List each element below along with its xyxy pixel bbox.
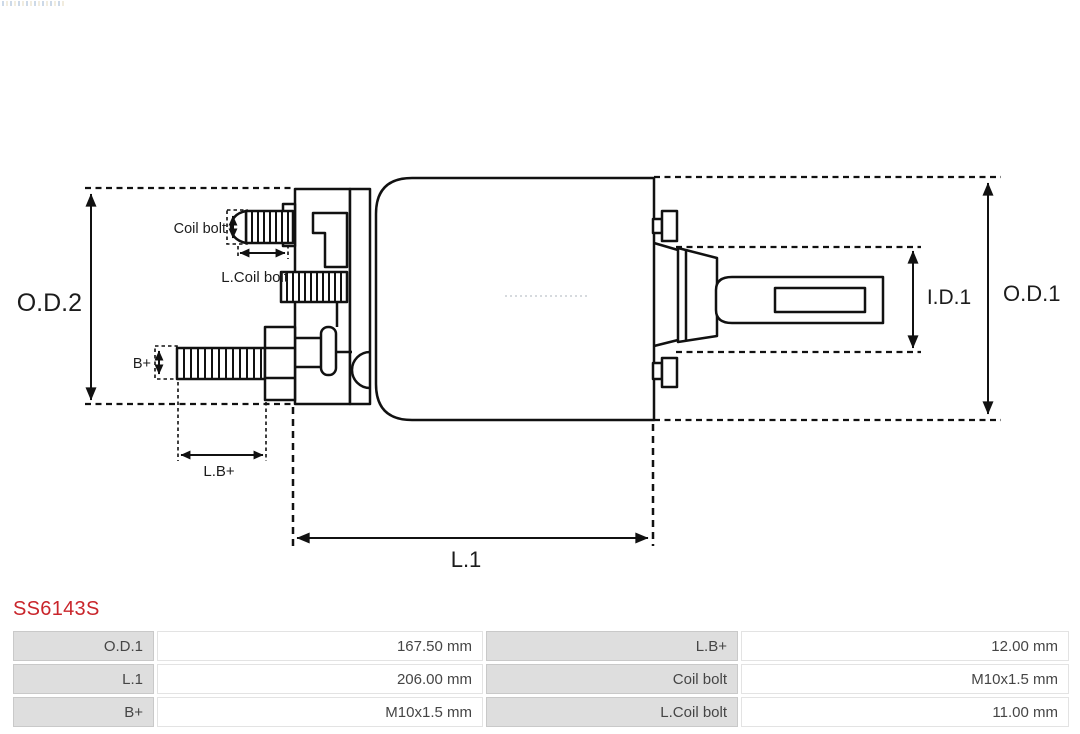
part-number: SS6143S — [13, 598, 100, 621]
coil-bolt-stud — [231, 211, 293, 243]
rear-terminal-tabs — [653, 211, 677, 387]
dimension-label-id1: I.D.1 — [927, 286, 971, 309]
spec-label: L.Coil bolt — [486, 697, 738, 727]
l1-extension-lines — [293, 407, 653, 546]
spec-value: 167.50 mm — [157, 631, 483, 661]
spec-label: L.B+ — [486, 631, 738, 661]
product-dimensions-page: O.D.2 O.D.1 I.D.1 L.1 Coil bolt L.Coil b… — [0, 0, 1080, 734]
table-row: L.1 206.00 mm Coil bolt M10x1.5 mm — [13, 664, 1069, 694]
spec-label: O.D.1 — [13, 631, 154, 661]
dimension-label-l1: L.1 — [451, 547, 482, 572]
dimension-label-od1: O.D.1 — [1003, 281, 1060, 306]
spec-value: 206.00 mm — [157, 664, 483, 694]
dimension-label-od2: O.D.2 — [17, 289, 82, 317]
spec-value: 12.00 mm — [741, 631, 1069, 661]
solenoid-body — [177, 178, 883, 420]
spec-label: L.1 — [13, 664, 154, 694]
spec-value: M10x1.5 mm — [157, 697, 483, 727]
spec-label: Coil bolt — [486, 664, 738, 694]
dimension-label-b-plus: B+ — [133, 356, 151, 372]
spec-value: 11.00 mm — [741, 697, 1069, 727]
spec-value: M10x1.5 mm — [741, 664, 1069, 694]
table-row: O.D.1 167.50 mm L.B+ 12.00 mm — [13, 631, 1069, 661]
dimension-label-lb-plus: L.B+ — [203, 463, 235, 480]
solenoid-dimension-diagram: O.D.2 O.D.1 I.D.1 L.1 Coil bolt L.Coil b… — [0, 0, 1080, 596]
spec-label: B+ — [13, 697, 154, 727]
specs-table: O.D.1 167.50 mm L.B+ 12.00 mm L.1 206.00… — [10, 628, 1072, 730]
plunger-shaft — [654, 243, 883, 346]
dimension-label-coil-bolt: Coil bolt — [174, 221, 226, 237]
dimension-label-l-coil-bolt: L.Coil bolt — [221, 269, 289, 286]
table-row: B+ M10x1.5 mm L.Coil bolt 11.00 mm — [13, 697, 1069, 727]
